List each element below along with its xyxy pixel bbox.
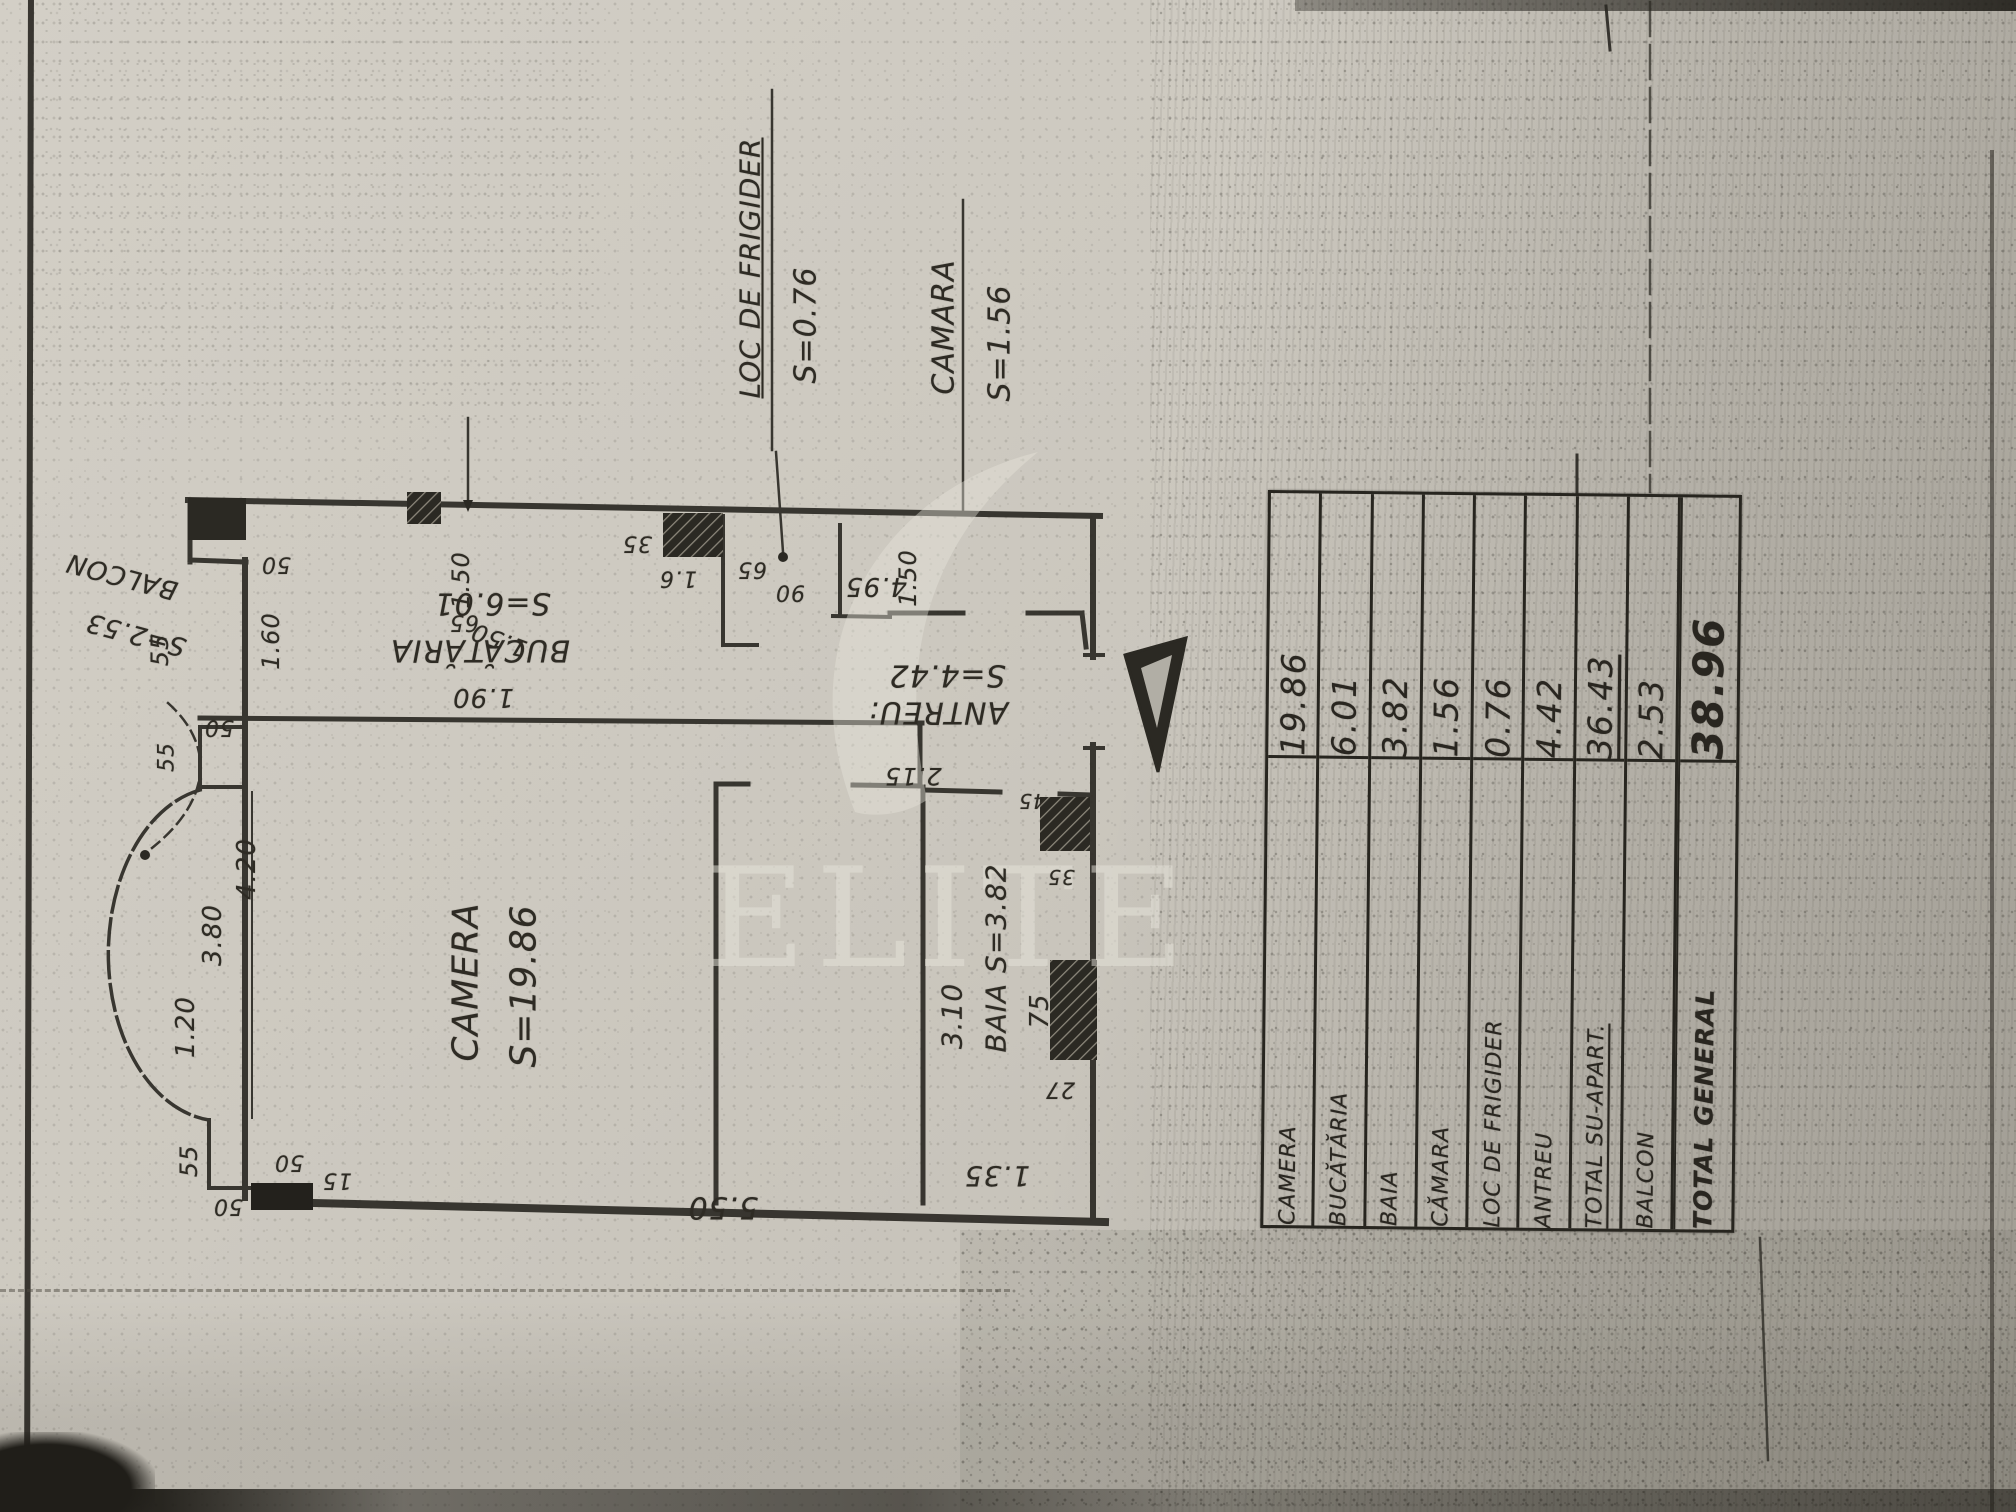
table-value: 6.01 <box>1324 670 1364 756</box>
table-label-cell: BALCON <box>1622 762 1675 1229</box>
leader-frigider <box>776 452 783 552</box>
table-row-5: 4.42ANTREU <box>1520 496 1579 1228</box>
table-row-3: 1.56CĂMARA <box>1417 495 1476 1227</box>
table-row-0: 19.86CAMERA <box>1263 493 1322 1225</box>
table-value-cell: 36.43 <box>1576 496 1627 761</box>
leader-dot-frigider <box>778 552 788 562</box>
table-value: 1.56 <box>1427 671 1467 757</box>
table-label-cell: CAMERA <box>1263 758 1316 1225</box>
table-value: 3.82 <box>1375 671 1415 757</box>
wall-corner-block <box>188 498 246 540</box>
table-row-6: 36.43TOTAL SU-APART. <box>1571 496 1630 1228</box>
table-value-cell: 1.56 <box>1422 495 1473 760</box>
table-row-7: 2.53BALCON <box>1622 497 1681 1229</box>
table-label-cell: BUCĂTĂRIA <box>1315 759 1368 1226</box>
table-row-2: 3.82BAIA <box>1366 494 1425 1226</box>
balcony-arc <box>108 790 209 1120</box>
wall-camera-antreu <box>716 784 920 786</box>
wall-block-bottom-left <box>251 1183 313 1210</box>
table-label: CAMERA <box>1275 1117 1301 1225</box>
wall-camara-left <box>833 525 890 617</box>
entry-door-jambs <box>1085 655 1103 748</box>
table-label: TOTAL GENERAL <box>1689 981 1721 1230</box>
wall-fridge-niche <box>723 516 757 645</box>
window-hatch-right-1 <box>1040 797 1090 851</box>
entrance-arrow-icon <box>1125 638 1186 772</box>
table-row-1: 6.01BUCĂTĂRIA <box>1315 494 1374 1226</box>
table-label-cell: BAIA <box>1366 759 1419 1226</box>
table-label-cell: ANTREU <box>1520 761 1573 1228</box>
wall-camara-bottom <box>890 613 1086 647</box>
scan-tick-top <box>1606 6 1610 50</box>
table-value-cell: 19.86 <box>1268 493 1319 758</box>
table-value-cell: 2.53 <box>1627 497 1678 762</box>
scanned-floor-plan-page: ELITE LOC DE FRIGIDERS=0.76CAMARAS=1.56B… <box>0 0 2016 1512</box>
leader-balcon <box>152 703 200 848</box>
table-label: LOC DE FRIGIDER <box>1480 1011 1507 1227</box>
table-value: 4.42 <box>1529 672 1569 758</box>
table-value-cell: 38.96 <box>1680 497 1739 763</box>
area-table: 19.86CAMERA6.01BUCĂTĂRIA3.82BAIA1.56CĂMA… <box>1260 490 1742 1233</box>
table-value-cell: 0.76 <box>1473 495 1524 760</box>
scan-line-below-table <box>1760 1238 1768 1460</box>
table-value: 36.43 <box>1580 650 1620 759</box>
table-label: ANTREU <box>1531 1124 1557 1228</box>
table-value: 38.96 <box>1684 613 1735 760</box>
leader-dot-balcon <box>140 850 150 860</box>
table-value-cell: 4.42 <box>1524 496 1575 761</box>
table-label-cell: LOC DE FRIGIDER <box>1468 760 1521 1227</box>
table-row-8: 38.96TOTAL GENERAL <box>1673 497 1739 1230</box>
wall-bucataria-camera <box>200 718 922 723</box>
window-hatch-top-2 <box>663 513 723 557</box>
table-value: 0.76 <box>1478 672 1518 758</box>
balcony-stub-top <box>200 727 245 788</box>
table-value: 2.53 <box>1632 673 1672 759</box>
table-value-cell: 6.01 <box>1319 494 1370 759</box>
table-value: 19.86 <box>1273 647 1313 756</box>
table-label: CĂMARA <box>1429 1118 1455 1227</box>
table-label: BAIA <box>1377 1163 1403 1227</box>
window-hatch-right-2 <box>1050 960 1097 1060</box>
table-label: BALCON <box>1634 1123 1660 1229</box>
window-hatch-top-1 <box>407 492 441 524</box>
table-label: TOTAL SU-APART. <box>1582 1015 1609 1228</box>
table-label-cell: CĂMARA <box>1417 760 1470 1227</box>
wall-bottom <box>313 1203 1105 1222</box>
table-value-cell: 3.82 <box>1371 494 1422 759</box>
wall-baia-top <box>923 790 1093 795</box>
table-label-cell: TOTAL SU-APART. <box>1571 761 1624 1228</box>
table-label-cell: TOTAL GENERAL <box>1675 762 1736 1230</box>
table-label: BUCĂTĂRIA <box>1326 1083 1352 1226</box>
table-row-4: 0.76LOC DE FRIGIDER <box>1468 495 1527 1227</box>
